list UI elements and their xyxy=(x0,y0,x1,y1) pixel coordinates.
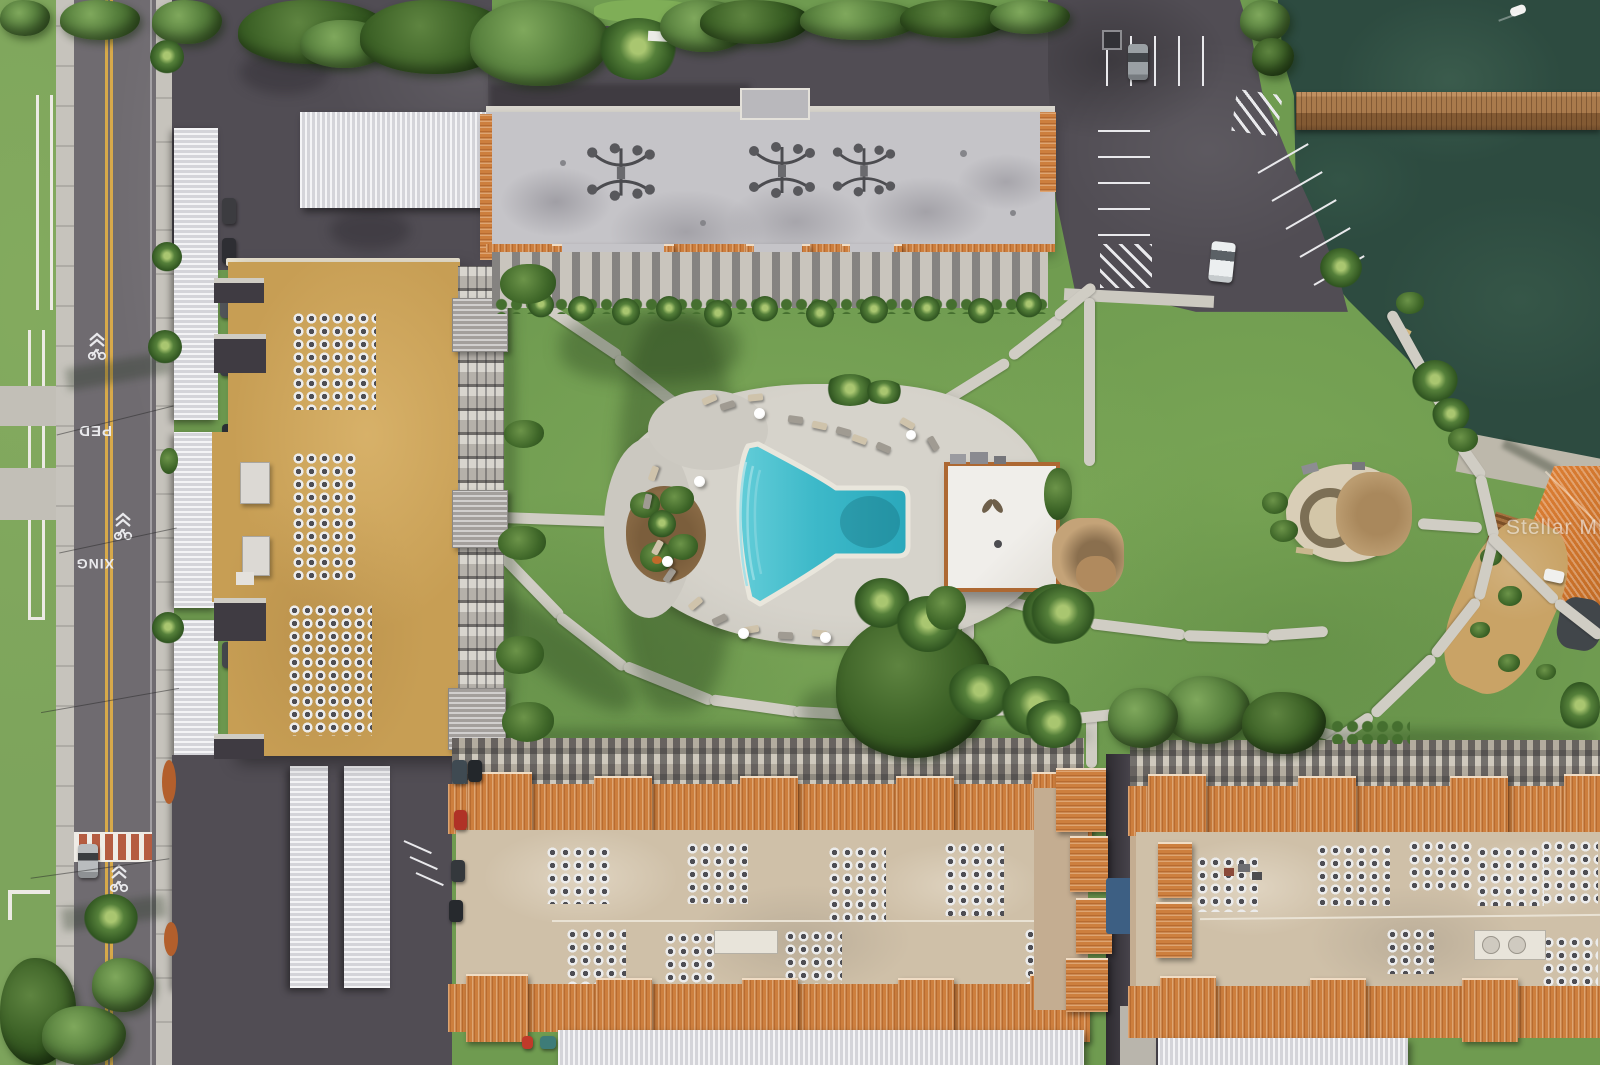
tree xyxy=(1252,38,1294,76)
hedge xyxy=(1330,720,1410,744)
parking-line xyxy=(1202,36,1204,86)
car xyxy=(452,760,467,784)
flowering-shrub xyxy=(652,556,662,564)
bush xyxy=(1044,468,1072,520)
dirt-patch xyxy=(1076,556,1116,592)
palm-tree xyxy=(752,296,778,322)
walking-path xyxy=(709,694,800,717)
car xyxy=(1128,44,1148,80)
rooftop-ac-units xyxy=(1386,928,1434,974)
car xyxy=(468,760,482,782)
tree xyxy=(1240,0,1290,42)
carport-roof xyxy=(1158,1038,1408,1065)
palm-tree xyxy=(152,242,182,272)
rooftop-ac-units xyxy=(1408,840,1472,892)
carport-roof xyxy=(558,1030,1084,1065)
palm-tree xyxy=(1432,398,1470,432)
rooftop-unit xyxy=(994,456,1006,464)
palm-tree xyxy=(648,510,676,538)
palm-tree xyxy=(1412,360,1458,402)
balcony-notch xyxy=(214,598,266,641)
patio-furniture xyxy=(1352,462,1365,470)
bench xyxy=(1296,547,1314,555)
sidewalk-west xyxy=(56,0,74,1065)
lounge-chair xyxy=(778,632,793,640)
umbrella xyxy=(906,430,916,440)
roof-walkway-line xyxy=(552,920,1052,922)
walking-path xyxy=(1089,618,1186,641)
bush xyxy=(1262,492,1288,514)
roof-vent xyxy=(560,160,566,166)
palm-tree xyxy=(1016,292,1042,318)
parking-line xyxy=(1178,36,1180,86)
parking-line xyxy=(1098,130,1150,132)
guardrail xyxy=(8,890,50,894)
mansard-bay xyxy=(1070,836,1108,892)
watermark: Stellar MLS xyxy=(1506,516,1600,540)
rooftop-ac-units xyxy=(1316,844,1390,906)
tan-tower-roof-ext xyxy=(212,432,230,602)
rooftop-mechanical-pad xyxy=(714,930,778,954)
car xyxy=(454,810,467,830)
bush xyxy=(504,420,544,448)
umbrella xyxy=(820,632,831,643)
car xyxy=(78,844,98,878)
guardrail xyxy=(28,617,45,620)
rooftop-hvac-equipment xyxy=(584,142,658,202)
roof-vent xyxy=(1010,210,1016,216)
rooftop-unit xyxy=(970,452,988,464)
tree xyxy=(700,0,810,44)
rooftop-unit xyxy=(950,454,966,464)
walking-path xyxy=(1007,314,1064,362)
mansard-bay xyxy=(1158,842,1192,898)
carport-roof xyxy=(344,766,390,988)
rooftop-ac-units xyxy=(1540,840,1598,904)
palm-tree xyxy=(864,380,904,404)
firepit-dirt xyxy=(1336,472,1412,556)
rooftop-ac-units xyxy=(292,312,376,410)
walking-path xyxy=(1418,518,1483,533)
guardrail xyxy=(36,95,39,310)
mansard-edge xyxy=(1040,112,1056,192)
rooftop-ac-units xyxy=(664,932,716,986)
flowering-shrub xyxy=(162,760,176,804)
palm-tree xyxy=(968,298,994,324)
tree xyxy=(60,0,140,40)
parking-line xyxy=(1098,234,1150,236)
rooftop-ac-units xyxy=(292,452,358,580)
guardrail xyxy=(8,894,12,920)
palm-tree xyxy=(84,894,138,944)
elevator-penthouse xyxy=(242,536,270,576)
umbrella xyxy=(662,556,673,567)
car xyxy=(449,900,463,922)
roof-vent xyxy=(994,540,1002,548)
rooftop-ac-units xyxy=(288,604,372,736)
pavement-stain xyxy=(330,210,410,250)
car xyxy=(1208,241,1236,283)
carport-roof xyxy=(174,128,218,420)
car xyxy=(451,860,465,882)
palm-tree xyxy=(1320,248,1362,288)
palm-tree xyxy=(860,296,888,324)
palm-tree xyxy=(148,330,182,364)
guardrail xyxy=(50,95,53,310)
parking-line xyxy=(1154,36,1156,86)
roof-vent xyxy=(960,150,967,157)
walking-path xyxy=(1184,630,1270,644)
dumpster xyxy=(1102,30,1122,50)
no-parking-hatch xyxy=(1231,89,1282,137)
walking-path xyxy=(1369,653,1438,720)
aerial-photo-condo-community: PED XING xyxy=(0,0,1600,1065)
boardwalk-dock xyxy=(1296,92,1600,130)
flowering-shrub xyxy=(164,922,178,956)
mansard-edge xyxy=(480,114,492,260)
tree xyxy=(92,958,154,1012)
rooftop-tank xyxy=(1482,936,1500,954)
rooftop-ac-units xyxy=(1542,936,1598,990)
palm-tree xyxy=(806,300,834,328)
rooftop-hvac-equipment xyxy=(746,140,818,200)
tree xyxy=(0,0,50,36)
carport-roof xyxy=(290,766,328,988)
walking-path xyxy=(1084,298,1095,466)
driveway-apron xyxy=(0,386,58,426)
rooftop-shed xyxy=(236,572,254,585)
no-parking-hatch xyxy=(1100,244,1152,288)
umbrella xyxy=(754,408,765,419)
car xyxy=(540,1036,556,1049)
parking-line xyxy=(1098,182,1150,184)
balcony-notch xyxy=(214,334,266,373)
mansard-bay xyxy=(1056,768,1106,832)
bush xyxy=(1536,664,1556,680)
tree xyxy=(1108,688,1178,748)
walking-path xyxy=(1086,716,1097,768)
tree xyxy=(1242,692,1326,754)
mansard-bay xyxy=(1160,976,1216,1042)
palm-tree xyxy=(656,296,682,322)
mansard-bay xyxy=(1066,958,1108,1012)
palm-tree xyxy=(704,300,732,328)
tree xyxy=(990,0,1070,34)
rooftop-hvac-equipment xyxy=(830,140,898,200)
palm-tree xyxy=(1030,586,1096,642)
elevator-penthouse xyxy=(240,462,270,504)
balcony-notch xyxy=(214,734,264,759)
umbrella xyxy=(694,476,705,487)
bush xyxy=(498,526,546,560)
palm-tree xyxy=(150,40,184,74)
umbrella xyxy=(738,628,749,639)
balcony-notch xyxy=(214,278,264,303)
roof-vent xyxy=(700,220,706,226)
palm-tree xyxy=(1560,682,1600,732)
bike-sharrow-marking xyxy=(86,332,108,362)
tree xyxy=(152,0,222,44)
rooftop-ac-units xyxy=(828,846,886,922)
xing-pavement-marking: XING xyxy=(76,556,114,572)
bush xyxy=(1270,520,1298,542)
roof-debris xyxy=(1238,864,1250,872)
parking-line xyxy=(1098,208,1150,210)
car xyxy=(522,1036,533,1049)
tree xyxy=(470,0,610,86)
rooftop-ac-units xyxy=(686,842,748,904)
rooftop-ac-units xyxy=(1476,846,1544,906)
driveway-apron xyxy=(0,468,58,520)
parking-line xyxy=(1098,156,1150,158)
roof-debris xyxy=(1224,868,1234,876)
palm-tree xyxy=(612,298,640,326)
rooftop-ac-units xyxy=(546,846,612,904)
roof-debris xyxy=(1252,872,1262,880)
bush xyxy=(496,636,544,674)
palm-tree xyxy=(914,296,940,322)
mansard-bay xyxy=(1156,902,1192,958)
mansard-bay xyxy=(1462,978,1518,1042)
entrance-canopy xyxy=(740,88,810,120)
rooftop-ac-units xyxy=(566,928,626,984)
mansard-bay xyxy=(1310,978,1366,1042)
rooftop-tank xyxy=(1508,936,1526,954)
palm-tree xyxy=(152,612,184,644)
walking-path xyxy=(1268,626,1329,641)
clubhouse-building xyxy=(944,462,1060,592)
mansard-bay xyxy=(466,974,528,1042)
rooftop-ac-units xyxy=(944,842,1004,916)
carport-roof xyxy=(300,112,490,208)
car xyxy=(222,198,236,224)
palm-tree xyxy=(568,296,594,322)
tree xyxy=(42,1006,126,1065)
bike-sharrow-marking xyxy=(108,864,130,894)
palm-tree xyxy=(1024,700,1084,748)
